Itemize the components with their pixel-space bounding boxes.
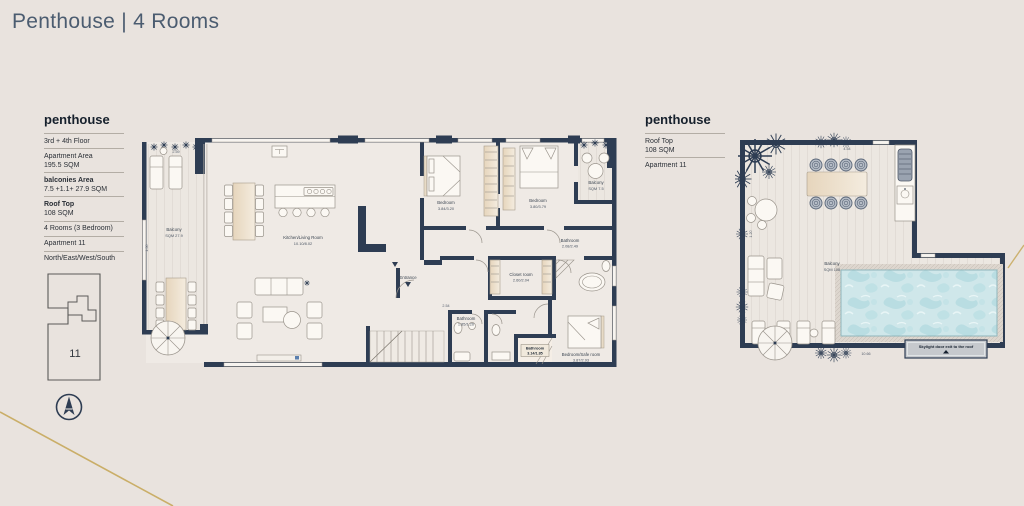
safe-room-label: Bedroom/Safe room [562,352,601,357]
svg-text:1.85/1.26: 1.85/1.26 [458,322,474,327]
info-row-rooftop-apartment: Apartment 11 [645,157,725,172]
info-row-balconies-area: balconies Area 7.5 +1.1+ 27.9 SQM [44,172,124,196]
balcony-left-label: Balcony [166,227,182,232]
sun-lounger [797,321,810,344]
dim-254: 2.54 [442,304,449,308]
pool-water [841,270,997,336]
svg-text:3.84/3.20: 3.84/3.20 [438,206,455,211]
toilet [602,261,610,272]
skylight-note: Skylight door exit to the roof [905,340,987,358]
kitchen-living-label: Kitchen/Living Room [283,235,323,240]
round-table [755,199,777,221]
svg-text:10.10/8.02: 10.10/8.02 [294,241,312,246]
armchair [307,323,322,339]
lounge-chair [150,156,163,189]
closet-label: Closet room [509,272,533,277]
compass-north-icon [52,390,86,424]
outdoor-kitchen [895,145,915,221]
rooftop-info-panel: penthouse Roof Top 108 SQM Apartment 11 [645,112,725,172]
dining-table [233,183,255,240]
balcony-top-label: Balcony [588,180,604,185]
chair [758,221,767,230]
svg-text:2.08/2.49: 2.08/2.49 [562,244,578,249]
chair [582,153,592,163]
dim-120: 1.20 [749,230,753,237]
bedroom-mid-label: Bedroom [529,198,547,203]
closet-shelves [490,260,500,294]
unit-number-label: 11 [69,348,80,360]
side-table [160,148,167,155]
rooftop-dining-table [807,172,867,196]
parasol-icon [151,321,185,355]
dim-259: 2.59 [172,150,179,154]
round-coffee-table [284,312,301,329]
bathroom-master-label: Bathroom [526,346,545,351]
info-row-rooftop-area: Roof Top 108 SQM [44,196,124,220]
sun-lounger [822,321,835,344]
info-row-floor: 3rd + 4th Floor [44,133,124,148]
rooftop-balcony-label: Balcony [824,261,840,266]
shower-tray [454,352,470,361]
sofa [255,278,303,295]
armchair [237,302,252,318]
outdoor-chaise [767,258,782,279]
info-row-rooftop: Roof Top 108 SQM [645,133,725,157]
skylight-note-label: Skylight door exit to the roof [919,344,974,349]
svg-text:3.14/1.85: 3.14/1.85 [527,352,542,356]
pool [835,264,1003,342]
info-row-rooms: 4 Rooms (3 Bedroom) [44,221,124,236]
outdoor-pouf [766,283,784,301]
dim-1066: 10.66 [861,352,870,356]
svg-text:3.87/2.93: 3.87/2.93 [573,358,589,363]
brochure-page: Penthouse | 4 Rooms penthouse 3rd + 4th … [0,0,1024,506]
bathroom-main-label: Bathroom [561,238,580,243]
dim-150: 1.50 [145,244,149,251]
staircase [370,331,444,362]
bathroom-small-label: Bathroom [457,316,476,321]
chair [599,153,609,163]
wardrobe [503,148,515,210]
dim-454: 4.54 [843,147,850,151]
parasol-icon [758,326,792,360]
vanity [492,352,510,360]
tv-console [257,355,301,361]
round-table [588,164,603,179]
bedroom-left-label: Bedroom [437,200,455,205]
building-position-diagram: 11 [38,272,108,387]
rooftop-panel-header: penthouse [645,112,725,127]
toilet [492,325,500,336]
entrance-label: Entrance [399,275,417,280]
roof-door [921,254,935,257]
armchair [237,323,252,339]
armchair [307,302,322,318]
rooftop-dining-set [807,159,867,209]
info-row-apartment-number: Apartment 11 [44,236,124,251]
chair [748,197,757,206]
svg-text:3.80/3.79: 3.80/3.79 [530,204,546,209]
rooftop-plan: Skylight door exit to the roof Balcony S… [735,132,1015,364]
svg-text:2.60/2.04: 2.60/2.04 [513,278,530,283]
svg-text:SQM 108: SQM 108 [824,267,840,272]
apartment-info-panel: penthouse 3rd + 4th Floor Apartment Area… [44,112,124,266]
chair [747,214,756,223]
side-table [810,329,818,337]
svg-text:SQM 27.9: SQM 27.9 [165,233,183,238]
info-row-orientation: North/East/West/South [44,251,124,266]
page-title: Penthouse | 4 Rooms [12,10,219,34]
roof-door [873,141,889,144]
info-row-apartment-area: Apartment Area 195.5 SQM [44,148,124,172]
console-decor [295,356,299,360]
apartment-panel-header: penthouse [44,112,124,127]
outdoor-sofa [748,256,764,296]
lounge-chair [169,156,182,189]
wardrobe [484,146,498,216]
closet-shelves [542,260,552,294]
main-floor-plan: Balcony SQM 27.9 Kitchen/Living Room 10.… [140,130,622,392]
svg-text:SQM 7.5: SQM 7.5 [588,186,603,191]
